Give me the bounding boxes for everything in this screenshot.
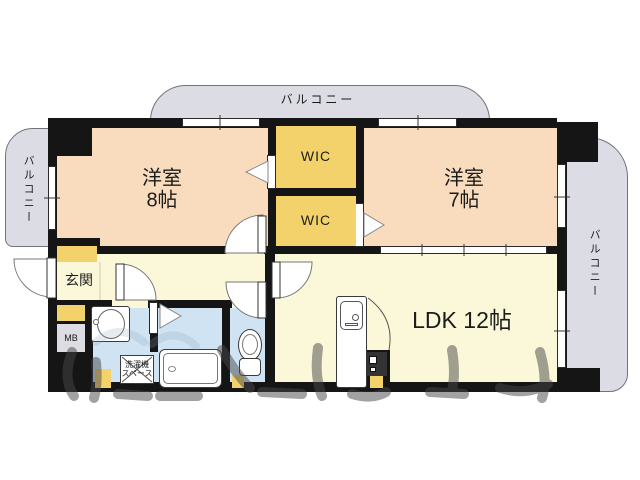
washroom-sink-faucet [93,319,99,325]
bedroom-7-size: 7帖 [448,190,479,212]
sliding-door-bedroom7-ldk [380,246,547,254]
laundry-line2: スペース [121,369,152,378]
window-right-bedroom7 [557,164,566,228]
bedroom-8-size: 8帖 [146,190,177,212]
toilet-tank [239,358,261,376]
window-top-bedroom8 [182,118,260,127]
wall-toilet-ldk [265,300,275,392]
balcony-top-label: バルコニー [281,93,356,106]
wall-entrance-notch [48,238,100,246]
toilet-pipe-space [232,375,244,388]
meter-box-label: MB [64,333,78,343]
window-left-bedroom8 [48,166,56,230]
bathtub-drain [168,366,176,372]
kitchen-stove-window [369,356,377,364]
laundry-space-label: 洗濯機 スペース [121,361,152,379]
laundry-line1: 洗濯機 [125,360,149,369]
wic-upper-door-opening [267,155,276,189]
pillar-top-left [50,118,92,156]
entrance-door-swing [14,259,52,297]
wic-lower-door-opening [355,203,364,247]
bedroom-8-name: 洋室 [142,168,182,190]
wic-upper-label: WIC [301,149,331,165]
toilet-bowl-inner [242,334,258,355]
kitchen-sink-slot [345,323,358,326]
entrance-pipe-space [57,305,85,321]
wall-hall-divider-c [547,246,557,254]
kitchen-pipe-space [370,374,383,388]
washroom-pipe-space [95,369,111,388]
wall-bath-toilet [222,300,230,392]
pillar-top-right [557,122,598,162]
washroom-sink-basin [97,309,125,339]
bath-door-opening [149,302,158,334]
wall-hall-divider-b [264,246,380,254]
ldk-label: LDK 12帖 [412,308,512,334]
entrance-shoe-cabinet [57,246,97,262]
wall-hall-divider-a [97,246,226,254]
bedroom-7-label: 洋室 7帖 [444,168,484,213]
bedroom-7-name: 洋室 [444,168,484,190]
balcony-right-label: バルコニー [588,229,600,299]
wall-washroom-top-b [148,300,228,308]
floorplan-stage: バルコニー バルコニー バルコニー 洋室 8帖 洋室 7帖 WIC WIC LD… [0,0,640,480]
window-top-bedroom7 [378,118,457,127]
entrance-label: 玄関 [65,273,93,289]
kitchen-faucet [352,314,359,321]
bedroom-8-label: 洋室 8帖 [142,168,182,213]
kitchen-stove-knob [370,367,376,372]
wic-lower-label: WIC [301,213,331,229]
window-right-ldk [557,290,566,368]
balcony-left-label: バルコニー [22,155,34,225]
